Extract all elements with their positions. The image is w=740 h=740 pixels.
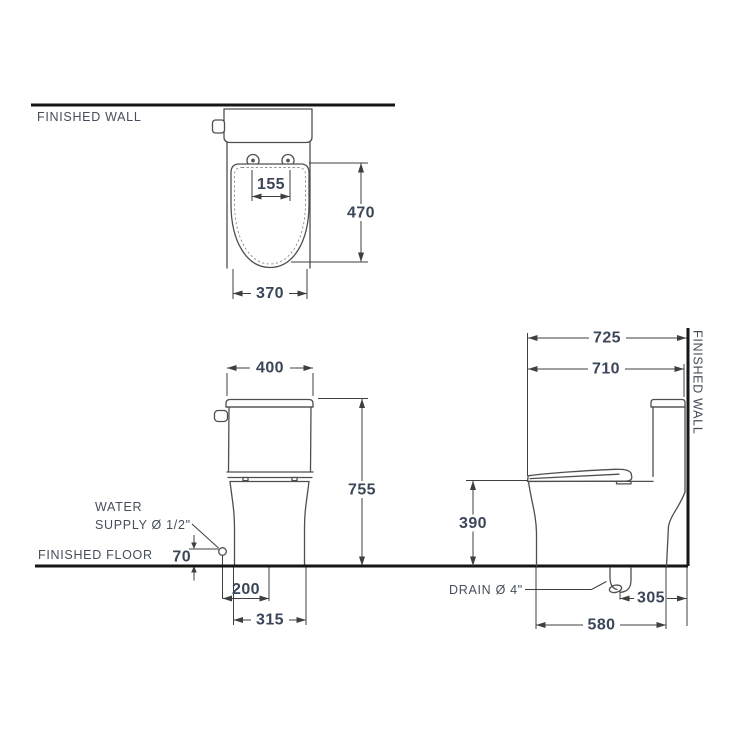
- body-front-side: [529, 482, 537, 567]
- drain-leader: [525, 582, 607, 590]
- dim-rim-height: 390: [456, 481, 528, 567]
- dim-supply-offset: 200 315: [223, 568, 307, 629]
- dim-200-text: 200: [232, 581, 260, 598]
- dim-305-text: 305: [637, 590, 665, 607]
- dim-drain-to-wall: 305: [620, 590, 687, 607]
- dim-70-text: 70: [172, 549, 191, 566]
- dim-70-arrow-top: [191, 543, 197, 550]
- front-view: 400 755 WATER SUPPLY Ø 1/2": [35, 360, 688, 629]
- water-supply-point: [219, 548, 227, 556]
- dim-overall-height: 755: [318, 399, 380, 567]
- dim-390-text: 390: [459, 515, 487, 532]
- water-supply-label-line1: WATER: [95, 500, 142, 514]
- tank-lid-side: [651, 400, 685, 408]
- dim-155-text: 155: [257, 176, 285, 193]
- dim-755-text: 755: [348, 482, 376, 499]
- dim-580-text: 580: [588, 617, 616, 634]
- tank-top-view: [224, 109, 312, 143]
- drain-label: DRAIN Ø 4": [449, 583, 523, 597]
- finished-floor-label: FINISHED FLOOR: [38, 548, 153, 562]
- hinge-left-dot: [251, 159, 255, 163]
- dim-315-text: 315: [256, 612, 284, 629]
- drain-outlet: DRAIN Ø 4": [449, 568, 631, 598]
- dim-bowl-width: 370: [233, 269, 307, 302]
- dim-710-text: 710: [592, 361, 620, 378]
- body-right-front: [305, 482, 310, 567]
- flush-button-top-view: [213, 120, 225, 133]
- finished-wall-label-top: FINISHED WALL: [37, 110, 142, 124]
- drawing-canvas: FINISHED WALL 155 470: [0, 0, 740, 740]
- dim-tank-width: 400: [227, 360, 313, 397]
- top-view: FINISHED WALL 155 470: [31, 105, 395, 302]
- tank-right-front: [311, 407, 312, 472]
- dim-400-text: 400: [256, 360, 284, 377]
- dim-725-text: 725: [593, 330, 621, 347]
- tank-lid-front: [226, 400, 313, 408]
- drain-right-edge: [621, 568, 631, 593]
- dim-470-text: 470: [347, 205, 375, 222]
- finished-wall-label-side: FINISHED WALL: [691, 330, 705, 435]
- body-left-front: [230, 482, 235, 567]
- dim-370-text: 370: [256, 285, 284, 302]
- hinge-right-dot: [286, 159, 290, 163]
- toilet-installation-drawing: FINISHED WALL 155 470: [0, 0, 740, 740]
- side-view: 725 710 FINISHED WALL 390 D: [449, 328, 705, 634]
- tank-left-front: [229, 407, 230, 472]
- water-supply-label-line2: SUPPLY Ø 1/2": [95, 518, 191, 532]
- seat-profile-side: [528, 469, 632, 481]
- body-back-side: [667, 492, 686, 566]
- seat-bumper-left-front: [243, 478, 248, 481]
- flush-button-front: [215, 411, 228, 422]
- seat-bumper-right-front: [292, 478, 297, 481]
